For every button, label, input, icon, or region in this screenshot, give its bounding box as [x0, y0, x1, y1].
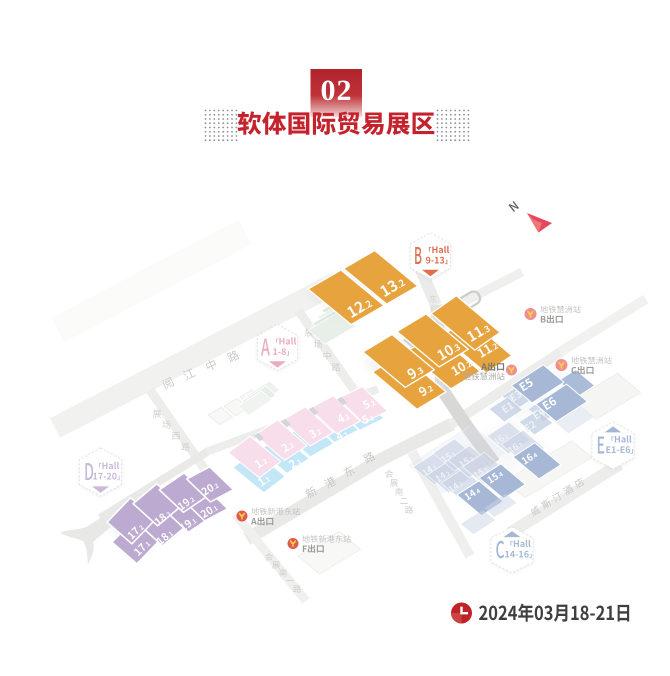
svg-text:02: 02: [321, 74, 353, 107]
